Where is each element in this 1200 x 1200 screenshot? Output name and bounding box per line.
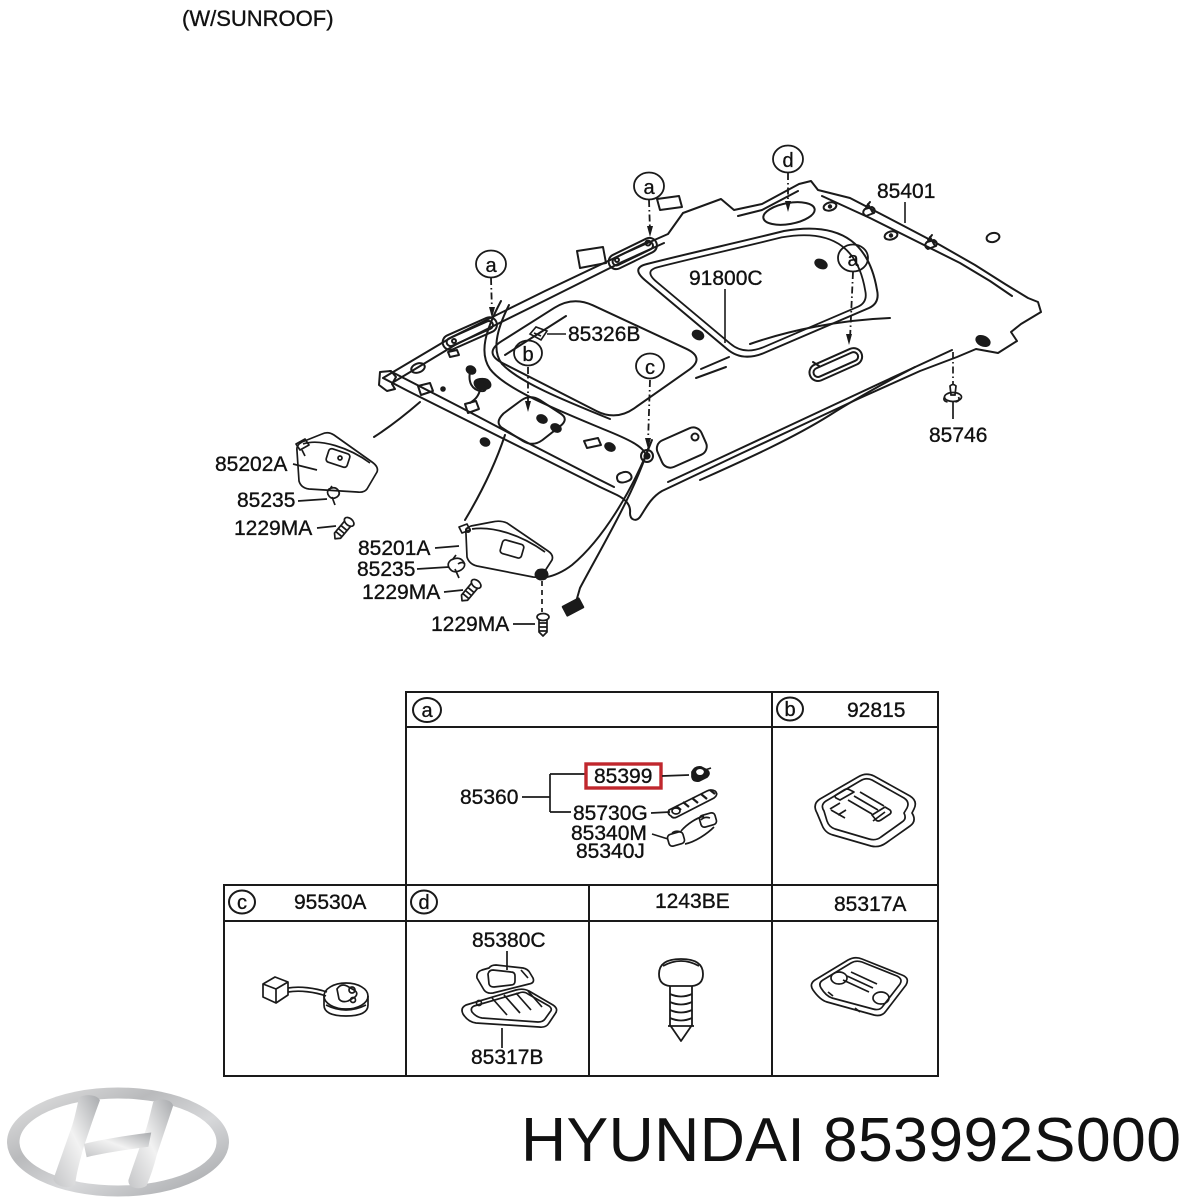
svg-text:85201A: 85201A xyxy=(358,537,430,560)
svg-text:85360: 85360 xyxy=(460,786,518,809)
svg-text:85340J: 85340J xyxy=(576,840,645,863)
svg-text:85746: 85746 xyxy=(929,424,987,447)
svg-text:85317B: 85317B xyxy=(471,1046,543,1069)
svg-text:85401: 85401 xyxy=(877,180,935,203)
svg-text:c: c xyxy=(237,892,247,914)
svg-text:1229MA: 1229MA xyxy=(362,581,440,604)
svg-text:a: a xyxy=(643,177,655,199)
svg-text:92815: 92815 xyxy=(847,699,905,722)
svg-text:85317A: 85317A xyxy=(834,893,906,916)
svg-text:85326B: 85326B xyxy=(568,323,640,346)
svg-text:a: a xyxy=(421,700,433,722)
svg-text:85235: 85235 xyxy=(237,489,295,512)
svg-text:c: c xyxy=(645,357,655,379)
svg-text:1229MA: 1229MA xyxy=(431,613,509,636)
svg-text:91800C: 91800C xyxy=(689,267,763,290)
svg-text:85202A: 85202A xyxy=(215,453,287,476)
svg-text:a: a xyxy=(847,249,859,271)
svg-text:85235: 85235 xyxy=(357,558,415,581)
svg-text:95530A: 95530A xyxy=(294,891,366,914)
svg-text:(W/SUNROOF): (W/SUNROOF) xyxy=(182,6,334,31)
svg-text:HYUNDAI 853992S000: HYUNDAI 853992S000 xyxy=(521,1105,1181,1175)
svg-text:1229MA: 1229MA xyxy=(234,517,312,540)
svg-text:85380C: 85380C xyxy=(472,929,546,952)
svg-text:85399: 85399 xyxy=(594,765,652,788)
svg-text:d: d xyxy=(418,892,429,914)
svg-text:d: d xyxy=(782,150,793,172)
svg-text:a: a xyxy=(485,255,497,277)
svg-text:1243BE: 1243BE xyxy=(655,890,730,913)
svg-text:b: b xyxy=(522,344,533,366)
svg-text:b: b xyxy=(784,699,795,721)
